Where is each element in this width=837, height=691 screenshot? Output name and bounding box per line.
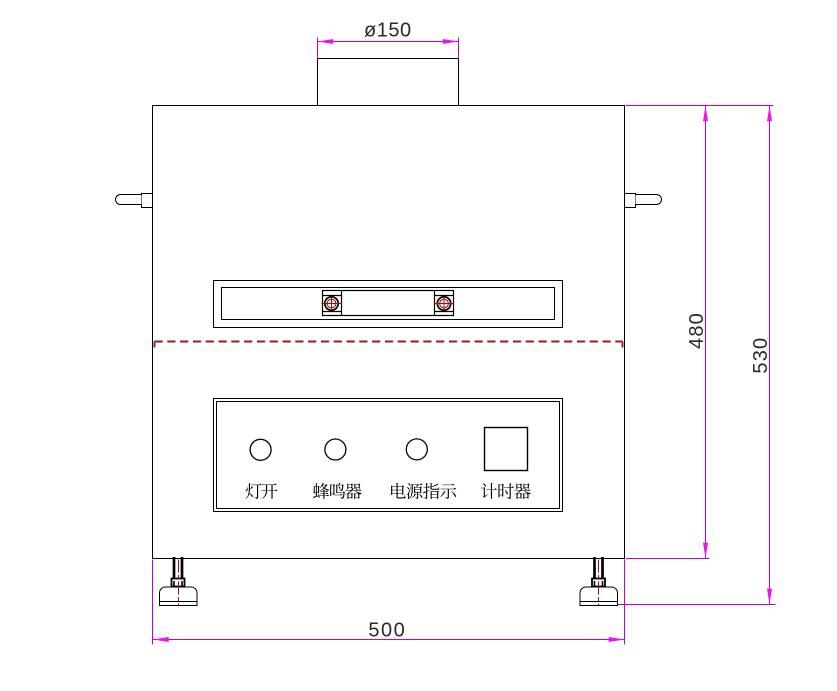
svg-text:ø150: ø150	[364, 20, 412, 42]
svg-text:530: 530	[750, 337, 772, 374]
svg-text:480: 480	[686, 312, 708, 349]
svg-text:500: 500	[368, 620, 406, 642]
